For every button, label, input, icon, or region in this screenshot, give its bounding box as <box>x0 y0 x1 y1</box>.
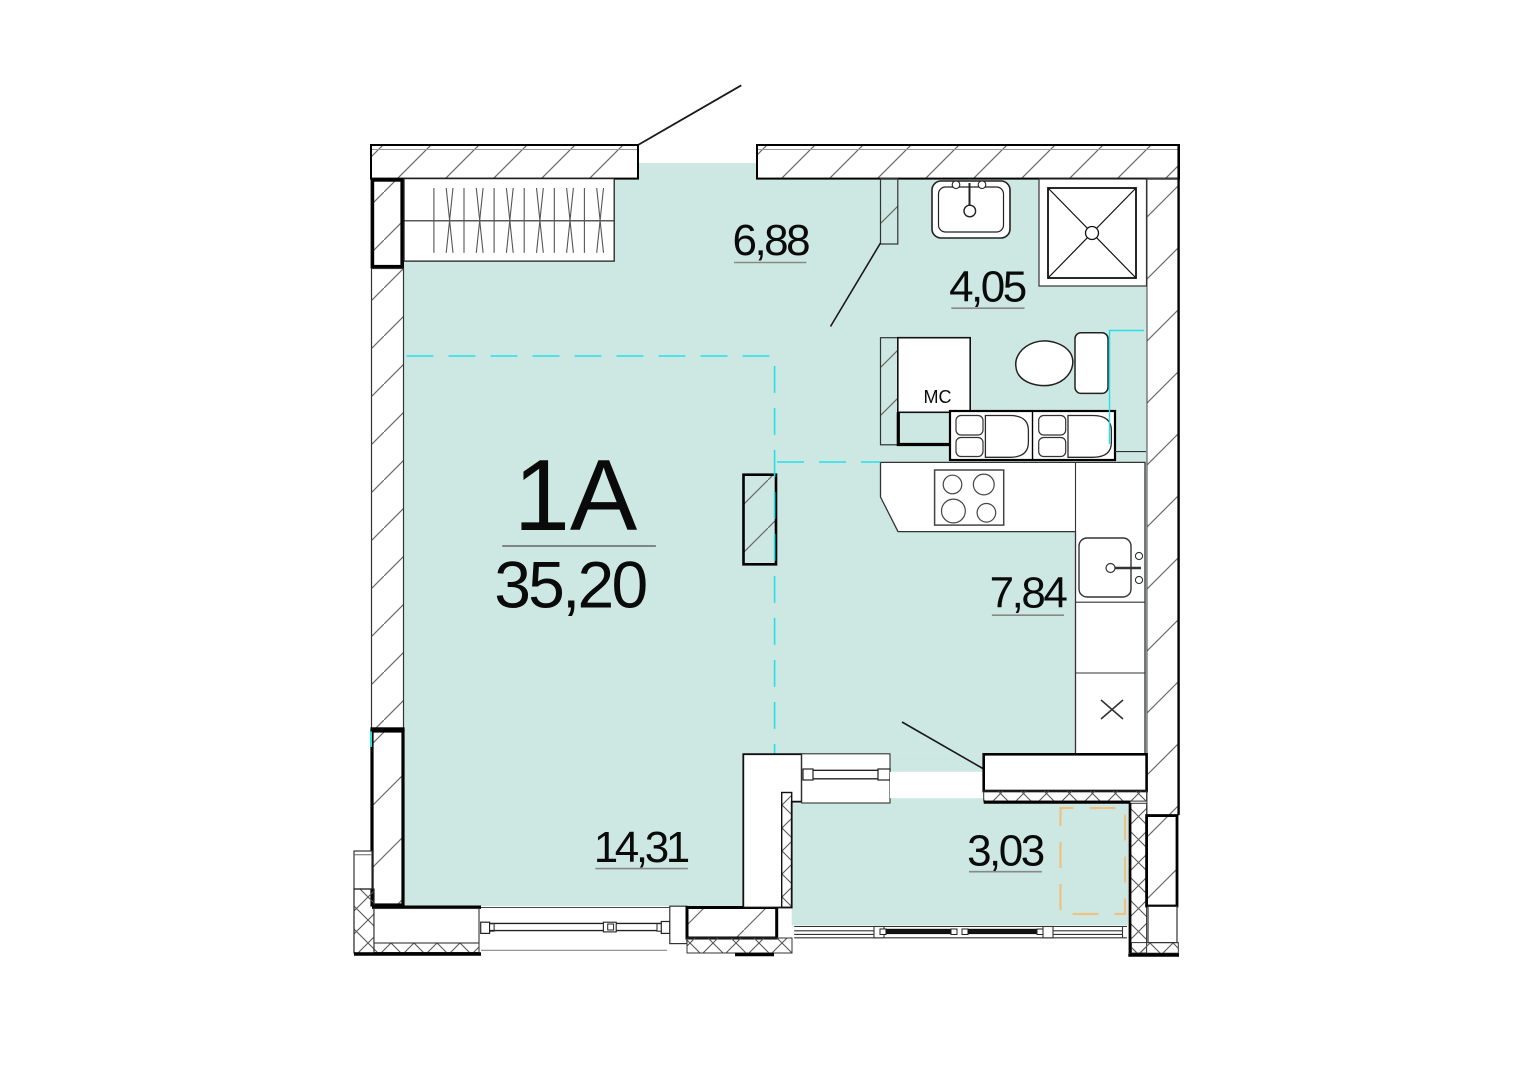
svg-text:6,88: 6,88 <box>732 216 809 265</box>
svg-text:1А: 1А <box>514 440 638 552</box>
svg-text:7,84: 7,84 <box>990 569 1068 618</box>
svg-text:4,05: 4,05 <box>949 263 1026 312</box>
svg-text:14,31: 14,31 <box>594 823 689 872</box>
svg-text:35,20: 35,20 <box>494 548 646 622</box>
svg-text:3,03: 3,03 <box>967 826 1044 875</box>
svg-text:МС: МС <box>924 387 952 407</box>
